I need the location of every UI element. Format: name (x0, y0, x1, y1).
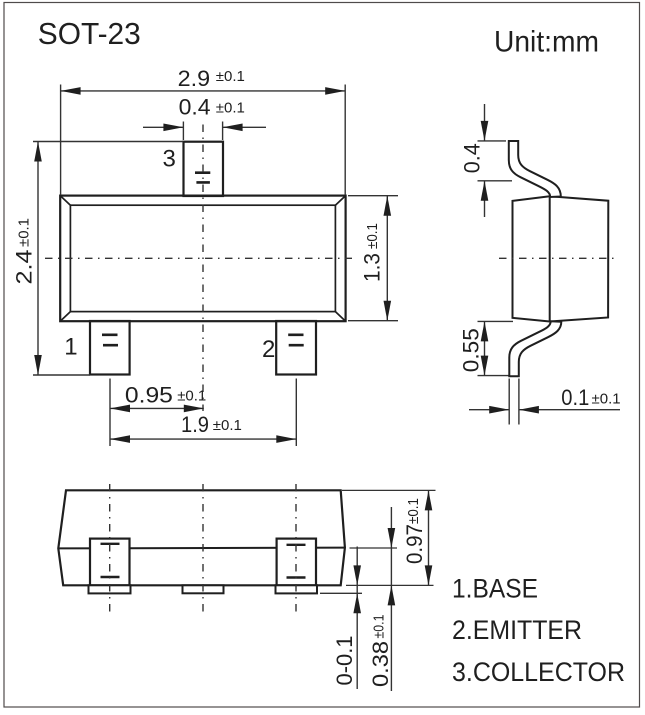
svg-text:±0.1: ±0.1 (213, 417, 242, 434)
svg-text:0.1: 0.1 (561, 385, 589, 410)
svg-text:±0.1: ±0.1 (592, 391, 621, 408)
svg-text:2.9: 2.9 (178, 66, 211, 91)
svg-text:±0.1: ±0.1 (405, 498, 422, 524)
svg-text:1: 1 (64, 334, 77, 361)
svg-text:1.3: 1.3 (360, 253, 385, 282)
svg-text:SOT-23: SOT-23 (38, 16, 141, 51)
svg-text:0.38: 0.38 (368, 641, 393, 687)
svg-text:2.4: 2.4 (12, 250, 37, 285)
svg-text:1.BASE: 1.BASE (452, 574, 538, 604)
svg-text:2: 2 (262, 336, 275, 363)
svg-text:±0.1: ±0.1 (16, 218, 33, 247)
svg-text:3.COLLECTOR: 3.COLLECTOR (452, 657, 625, 687)
svg-text:3: 3 (163, 146, 176, 173)
svg-text:±0.1: ±0.1 (364, 223, 381, 249)
svg-text:0.4: 0.4 (179, 95, 211, 120)
svg-text:±0.1: ±0.1 (216, 100, 245, 117)
svg-text:Unit:mm: Unit:mm (494, 26, 599, 59)
svg-text:±0.1: ±0.1 (371, 615, 388, 639)
svg-text:±0.1: ±0.1 (216, 68, 245, 85)
svg-text:0.97: 0.97 (402, 524, 427, 564)
svg-text:0.4: 0.4 (460, 143, 485, 173)
svg-text:0.95: 0.95 (125, 383, 173, 408)
svg-text:2.EMITTER: 2.EMITTER (452, 615, 582, 645)
svg-text:±0.1: ±0.1 (177, 388, 206, 405)
svg-text:0-0.1: 0-0.1 (332, 636, 357, 686)
svg-text:0.55: 0.55 (459, 328, 484, 372)
svg-text:1.9: 1.9 (181, 412, 209, 437)
